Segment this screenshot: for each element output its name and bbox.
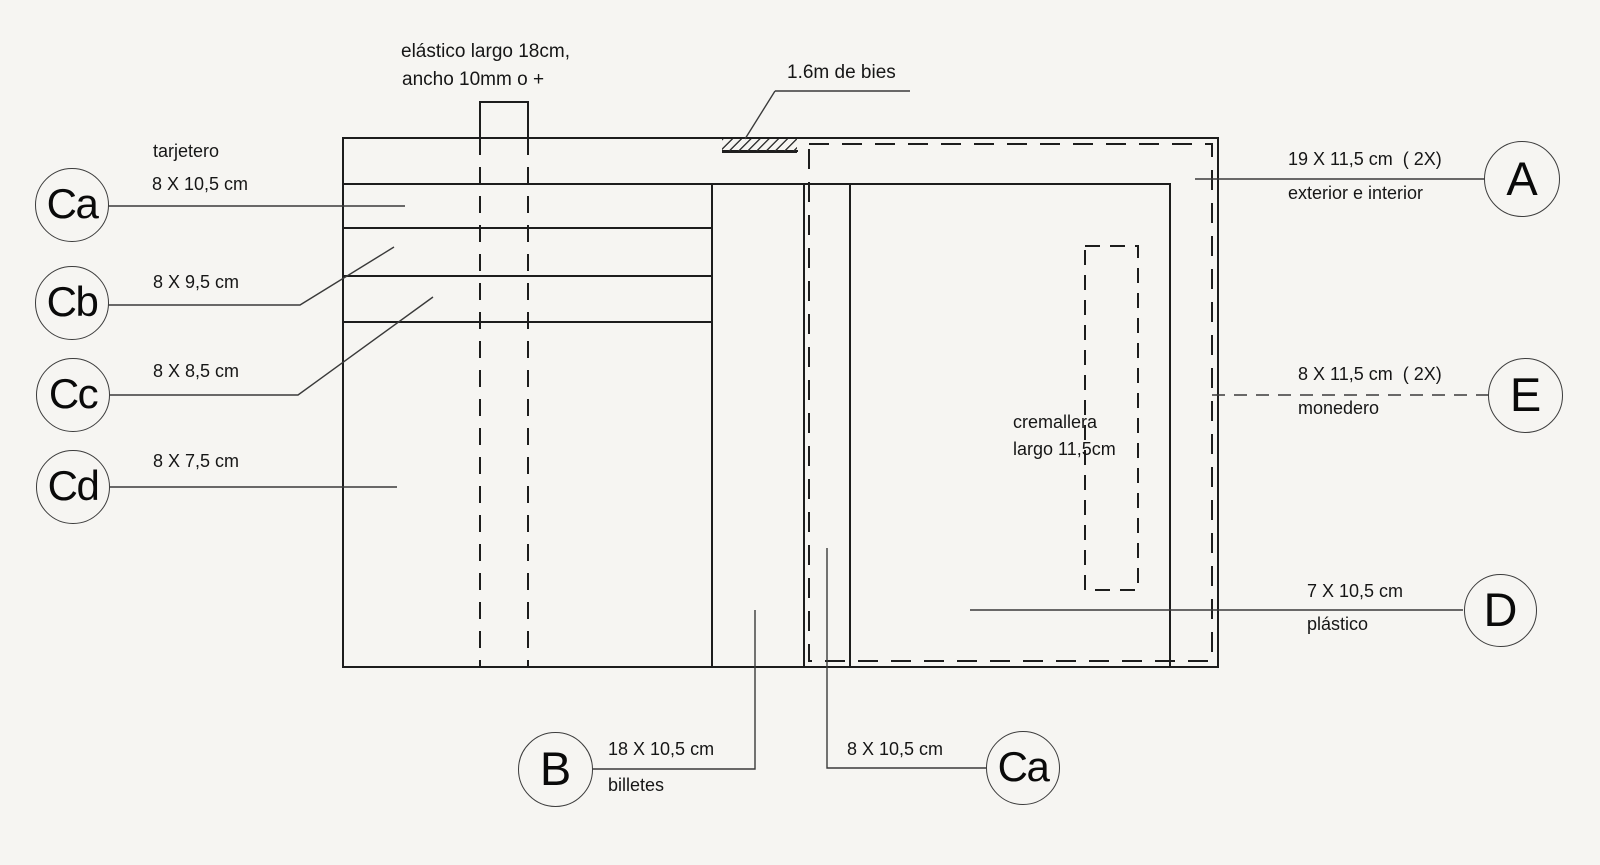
callout-a-letter: A — [1506, 151, 1537, 206]
ca-note: tarjetero — [153, 142, 219, 162]
callout-b-circle: B — [518, 732, 593, 807]
callout-ca-letter: Ca — [47, 180, 98, 228]
e-note: monedero — [1298, 399, 1379, 419]
callout-e-letter: E — [1510, 367, 1541, 422]
callout-cd-circle: Cd — [36, 450, 110, 524]
monedero-dashed-rect — [809, 144, 1212, 661]
cc-dimension: 8 X 8,5 cm — [153, 362, 239, 382]
a-dimension: 19 X 11,5 cm ( 2X) — [1288, 150, 1442, 170]
elastic-note-line2: ancho 10mm o + — [402, 70, 544, 91]
bies-note: 1.6m de bies — [787, 63, 896, 84]
e-dimension: 8 X 11,5 cm ( 2X) — [1298, 365, 1442, 385]
d-note: plástico — [1307, 615, 1368, 635]
outer-panel-rect — [343, 138, 1218, 667]
b-dimension: 18 X 10,5 cm — [608, 740, 714, 760]
leader-bies-diagonal — [745, 91, 775, 139]
wallet-pattern-diagram: elástico largo 18cm, ancho 10mm o + 1.6m… — [0, 0, 1600, 865]
ca-dimension: 8 X 10,5 cm — [152, 175, 248, 195]
callout-b-letter: B — [540, 741, 571, 796]
callout-cd-letter: Cd — [48, 462, 99, 510]
zipper-note-line1: cremallera — [1013, 413, 1097, 433]
callout-ca-bottom-circle: Ca — [986, 731, 1060, 805]
cb-dimension: 8 X 9,5 cm — [153, 273, 239, 293]
callout-cc-circle: Cc — [36, 358, 110, 432]
callout-ca-circle: Ca — [35, 168, 109, 242]
elastic-tab — [480, 102, 528, 138]
bies-hatch-mark — [722, 139, 797, 153]
callout-ca-bottom-letter: Ca — [998, 743, 1049, 791]
callout-d-letter: D — [1484, 582, 1518, 637]
d-dimension: 7 X 10,5 cm — [1307, 582, 1403, 602]
callout-cc-letter: Cc — [49, 370, 97, 418]
ca-bottom-dimension: 8 X 10,5 cm — [847, 740, 943, 760]
zipper-note-line2: largo 11,5cm — [1013, 440, 1116, 460]
callout-cb-circle: Cb — [35, 266, 109, 340]
callout-a-circle: A — [1484, 141, 1560, 217]
callout-d-circle: D — [1464, 574, 1537, 647]
callout-cb-letter: Cb — [47, 278, 98, 326]
pattern-linework — [0, 0, 1600, 865]
cd-dimension: 8 X 7,5 cm — [153, 452, 239, 472]
b-note: billetes — [608, 776, 664, 796]
callout-e-circle: E — [1488, 358, 1563, 433]
elastic-note-line1: elástico largo 18cm, — [401, 42, 570, 63]
a-note: exterior e interior — [1288, 184, 1423, 204]
